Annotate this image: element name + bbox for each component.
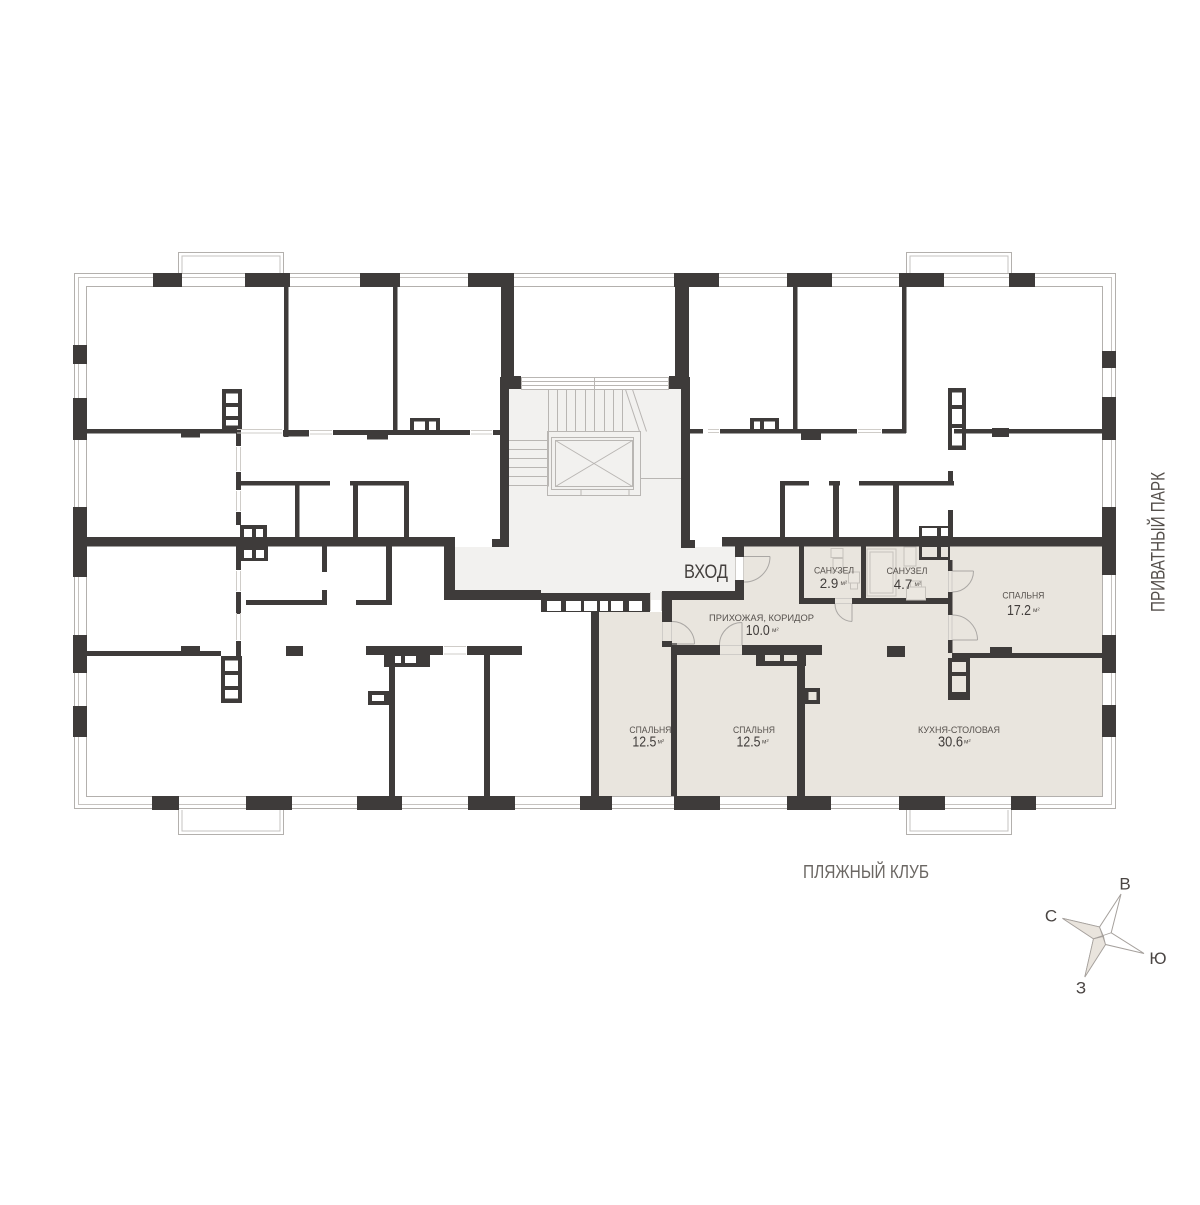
svg-text:ПРИВАТНЫЙ ПАРК: ПРИВАТНЫЙ ПАРК [1148,472,1170,612]
svg-text:СПАЛЬНЯ: СПАЛЬНЯ [1002,591,1044,601]
svg-text:м²: м² [1033,607,1040,614]
svg-text:м²: м² [915,581,922,588]
svg-text:КУХНЯ-СТОЛОВАЯ: КУХНЯ-СТОЛОВАЯ [918,725,1000,735]
svg-text:м²: м² [964,739,971,746]
svg-text:САНУЗЕЛ: САНУЗЕЛ [814,566,854,576]
svg-text:З: З [1076,979,1086,998]
svg-text:САНУЗЕЛ: САНУЗЕЛ [887,566,928,576]
svg-text:12.5: 12.5 [632,735,656,751]
svg-text:В: В [1119,875,1130,894]
svg-text:СПАЛЬНЯ: СПАЛЬНЯ [629,725,671,735]
svg-text:СПАЛЬНЯ: СПАЛЬНЯ [733,725,775,735]
svg-text:ВХОД: ВХОД [684,562,728,583]
svg-text:4.7: 4.7 [894,577,913,592]
svg-text:30.6: 30.6 [938,735,963,751]
svg-text:ПРИХОЖАЯ, КОРИДОР: ПРИХОЖАЯ, КОРИДОР [709,613,814,623]
svg-text:17.2: 17.2 [1007,603,1031,619]
svg-text:2.9: 2.9 [820,576,839,591]
svg-text:м²: м² [772,627,779,634]
svg-text:м²: м² [841,580,848,587]
svg-text:Ю: Ю [1149,949,1166,968]
svg-text:10.0: 10.0 [746,623,770,639]
svg-text:С: С [1045,907,1057,926]
svg-text:12.5: 12.5 [737,735,761,751]
svg-text:м²: м² [762,739,769,746]
svg-text:ПЛЯЖНЫЙ КЛУБ: ПЛЯЖНЫЙ КЛУБ [803,861,929,882]
svg-text:м²: м² [658,739,665,746]
